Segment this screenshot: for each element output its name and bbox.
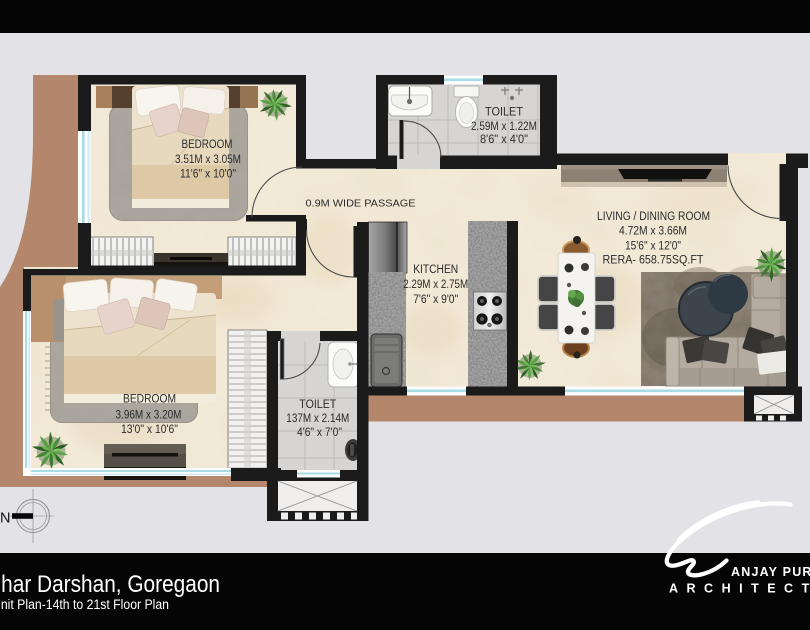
svg-text:4.72M x 3.66M: 4.72M x 3.66M	[619, 226, 687, 238]
svg-text:4'6" x 7'0": 4'6" x 7'0"	[297, 427, 342, 439]
svg-text:TOILET: TOILET	[485, 107, 523, 119]
svg-text:0.9M WIDE PASSAGE: 0.9M WIDE PASSAGE	[306, 198, 416, 210]
svg-text:137M x 2.14M: 137M x 2.14M	[286, 413, 349, 425]
svg-text:ARCHITECTS: ARCHITECTS	[669, 582, 810, 596]
svg-text:15'6" x 12'0": 15'6" x 12'0"	[625, 240, 681, 252]
svg-text:Unit Plan-14th to 21st Floor P: Unit Plan-14th to 21st Floor Plan	[0, 597, 169, 612]
svg-text:LIVING / DINING ROOM: LIVING / DINING ROOM	[597, 211, 710, 223]
svg-text:Vihar Darshan, Goregaon: Vihar Darshan, Goregaon	[0, 571, 220, 598]
svg-text:13'0" x 10'6": 13'0" x 10'6"	[121, 424, 178, 436]
svg-text:3.96M x 3.20M: 3.96M x 3.20M	[116, 410, 182, 422]
svg-text:11'6" x 10'0": 11'6" x 10'0"	[180, 169, 236, 181]
svg-text:KITCHEN: KITCHEN	[413, 264, 458, 276]
svg-text:BEDROOM: BEDROOM	[182, 139, 233, 151]
svg-text:TOILET: TOILET	[299, 399, 336, 411]
svg-text:2.29M x 2.75M: 2.29M x 2.75M	[403, 279, 468, 291]
svg-text:3.51M x 3.05M: 3.51M x 3.05M	[175, 154, 241, 166]
svg-text:RERA- 658.75SQ.FT: RERA- 658.75SQ.FT	[603, 254, 704, 266]
svg-text:N: N	[0, 511, 10, 527]
svg-text:ANJAY PURI: ANJAY PURI	[731, 565, 810, 579]
svg-text:2.59M x 1.22M: 2.59M x 1.22M	[471, 121, 537, 133]
svg-text:BEDROOM: BEDROOM	[123, 394, 176, 406]
svg-text:8'6" x 4'0": 8'6" x 4'0"	[480, 134, 528, 146]
svg-text:7'6" x 9'0": 7'6" x 9'0"	[413, 294, 458, 306]
